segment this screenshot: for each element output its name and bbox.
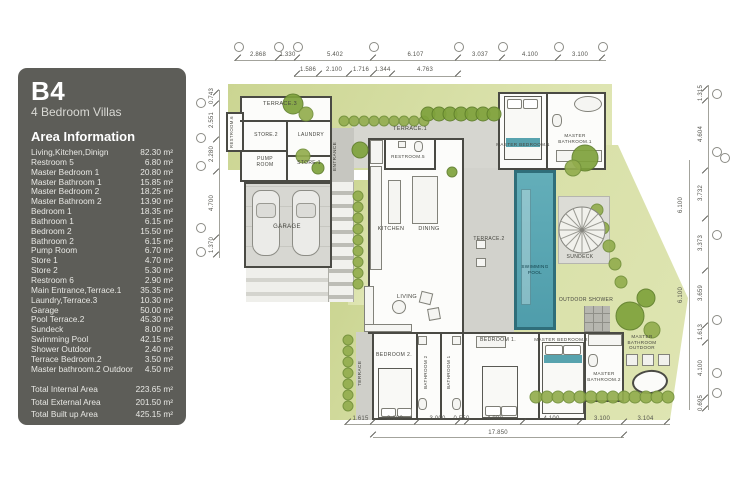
pool-ledge — [521, 189, 531, 305]
pillow — [485, 406, 501, 416]
toilet — [414, 141, 423, 152]
label-outdoor-shower: OUTDOOR SHOWER — [558, 297, 614, 303]
plan-subtitle: 4 Bedroom Villas — [31, 105, 173, 119]
toilet — [452, 398, 461, 410]
pillow — [523, 99, 538, 109]
dim-line — [373, 437, 624, 438]
toilet — [552, 114, 562, 127]
area-list: Living,Kitchen,Dinign 82.30 m² Restroom … — [31, 148, 173, 374]
dim-label: 6.107 — [373, 52, 458, 58]
label-restroom5: RESTROOM.5 — [384, 154, 432, 160]
label-bedroom1: BEDROOM 1. — [466, 337, 530, 344]
label-store2: STORE.2 — [246, 132, 286, 138]
total-value: 201.50 m² — [136, 396, 173, 408]
sink — [398, 141, 406, 148]
dim-label: 1.330 — [278, 52, 297, 58]
dim-tick — [621, 431, 627, 437]
dim-label: 3.732 — [698, 180, 704, 206]
toilet — [418, 398, 427, 410]
car-windshield — [256, 203, 276, 218]
grid-bubble — [598, 42, 608, 52]
dim-label: 2.100 — [319, 67, 349, 73]
dim-label: 3.000 — [417, 416, 458, 422]
vanity — [556, 150, 602, 162]
dim-label: 2.280 — [209, 141, 215, 167]
dim-label: 6.100 — [678, 282, 684, 308]
pillow — [501, 406, 517, 416]
grid-bubble — [196, 247, 206, 257]
grid-bubble — [369, 42, 379, 52]
grid-bubble — [712, 230, 722, 240]
dim-label: 1.370 — [209, 232, 215, 258]
dim-line — [708, 85, 709, 410]
dim-label: 3.100 — [580, 416, 624, 422]
car — [292, 190, 320, 256]
grid-bubble — [196, 98, 206, 108]
area-value: 4.50 m² — [145, 365, 173, 375]
area-information-heading: Area Information — [31, 129, 173, 144]
bathtub — [574, 96, 602, 112]
vanity — [588, 334, 622, 346]
dim-label: 4.000 — [467, 416, 523, 422]
terrace-2-area — [462, 168, 514, 332]
dim-label: 5.402 — [297, 52, 373, 58]
dim-label: 4.700 — [209, 190, 215, 216]
page: { "panel": { "title": "B4", "subtitle": … — [0, 0, 750, 500]
dim-label: 1.613 — [698, 319, 704, 345]
paver — [658, 354, 670, 366]
label-terrace1: TERRACE.1 — [390, 126, 430, 133]
dim-label: 3.659 — [698, 280, 704, 306]
dim-label: 3.104 — [624, 416, 667, 422]
sink — [418, 336, 427, 345]
grid-bubble — [274, 42, 284, 52]
sink — [452, 336, 461, 345]
dim-label: 2.551 — [209, 107, 215, 133]
plan-title: B4 — [31, 77, 173, 105]
label-entrance: ENTRANCE — [333, 136, 339, 176]
dim-line — [219, 90, 220, 258]
grid-bubble — [234, 42, 244, 52]
dim-label: 4.100 — [502, 52, 558, 58]
label-sundeck: SUNDECK — [558, 254, 602, 260]
dim-label: 0.743 — [209, 83, 215, 109]
pillow — [507, 99, 522, 109]
label-pump-room: PUMP ROOM — [248, 156, 282, 169]
partition — [286, 155, 332, 157]
grid-bubble — [554, 42, 564, 52]
dim-label: 17.850 — [458, 430, 538, 436]
label-bedroom2: BEDROOM 2. — [370, 352, 418, 359]
label-master-bedroom1: MASTER BEDROOM.1 — [496, 142, 550, 148]
dim-label: 1.615 — [348, 416, 373, 422]
driveway — [246, 268, 332, 302]
label-master-bedroom2: MASTER BEDROOM.2 — [532, 337, 590, 343]
total-row: Total Internal Area 223.65 m² — [31, 383, 173, 395]
grid-bubble — [712, 388, 722, 398]
dim-label: 3.100 — [558, 52, 602, 58]
pillow — [563, 345, 581, 355]
dim-label: 3.100 — [373, 416, 417, 422]
total-label: Total Built up Area — [31, 408, 98, 420]
dim-label: 1.315 — [698, 80, 704, 106]
pillow — [545, 345, 563, 355]
car-windshield — [296, 203, 316, 218]
dim-label: 3.373 — [698, 230, 704, 256]
label-bathroom2: BATHROOM 2 — [423, 346, 429, 398]
label-master-bathroom-outdoor: MASTER BATHROOM OUTDOOR — [620, 334, 664, 351]
total-label: Total Internal Area — [31, 383, 98, 395]
label-restroom6: RESTROOM.6 — [229, 114, 234, 150]
grid-bubble — [720, 153, 730, 163]
swimming-pool — [514, 170, 556, 330]
grid-bubble — [712, 89, 722, 99]
dim-label: 2.868 — [238, 52, 278, 58]
grid-bubble — [293, 42, 303, 52]
grid-bubble — [196, 133, 206, 143]
label-terrace2: TERRACE.2 — [466, 236, 512, 242]
paver — [642, 354, 654, 366]
total-row: Total External Area 201.50 m² — [31, 396, 173, 408]
label-kitchen: KITCHEN — [374, 226, 408, 233]
dining-table — [412, 176, 438, 224]
label-terrace-strip: TERRACE — [358, 350, 364, 396]
label-laundry: LAUNDRY — [291, 132, 331, 138]
total-row: Total Built up Area 425.15 m² — [31, 408, 173, 420]
label-master-bathroom2: MASTER BATHROOM.2 — [584, 371, 624, 382]
dim-label: 3.037 — [458, 52, 502, 58]
bed-runner — [544, 355, 582, 363]
sofa — [364, 324, 412, 332]
info-panel: B4 4 Bedroom Villas Area Information Liv… — [18, 68, 186, 425]
label-living: LIVING — [390, 294, 424, 301]
dim-label: 1.586 — [297, 67, 319, 73]
deck-chair — [476, 258, 486, 267]
grid-bubble — [196, 161, 206, 171]
dim-line — [689, 160, 690, 410]
dim-label: 4.604 — [698, 121, 704, 147]
total-value: 425.15 m² — [136, 408, 173, 420]
area-label: Master bathroom.2 Outdoor — [31, 365, 133, 375]
label-terrace3: TERRACE.3 — [257, 101, 303, 108]
grid-bubble — [712, 315, 722, 325]
label-master-bathroom1: MASTER BATHROOM.1 — [554, 133, 596, 144]
dim-label: 1.716 — [349, 67, 373, 73]
grid-bubble — [196, 223, 206, 233]
grid-bubble — [454, 42, 464, 52]
dim-label: 1.344 — [373, 67, 392, 73]
hall-closet — [370, 140, 383, 164]
partition — [240, 150, 288, 152]
grid-bubble — [498, 42, 508, 52]
kitchen-island — [388, 180, 401, 224]
label-garage: GARAGE — [264, 224, 310, 232]
dim-label: 4.100 — [698, 355, 704, 381]
total-value: 223.65 m² — [136, 383, 173, 395]
dim-line — [234, 60, 606, 61]
label-bathroom1: BATHROOM 1 — [446, 346, 452, 398]
dim-label: 0.695 — [698, 390, 704, 416]
coffee-table — [392, 300, 406, 314]
toilet — [588, 354, 598, 367]
totals-list: Total Internal Area 223.65 m² Total Exte… — [31, 383, 173, 420]
dim-label: 4.763 — [392, 67, 458, 73]
dim-label: 4.100 — [523, 416, 580, 422]
label-swimming-pool: SWIMMING POOL — [514, 264, 556, 275]
dim-line — [294, 76, 461, 77]
partition — [286, 122, 288, 182]
kitchen-counter — [370, 166, 382, 270]
grid-bubble — [712, 368, 722, 378]
area-row: Master bathroom.2 Outdoor 4.50 m² — [31, 365, 173, 375]
paver — [626, 354, 638, 366]
outdoor-shower-pad — [584, 306, 610, 332]
label-dining: DINING — [412, 226, 446, 233]
armchair — [427, 307, 441, 321]
car — [252, 190, 280, 256]
total-label: Total External Area — [31, 396, 101, 408]
label-store1: STORE.1 — [291, 160, 327, 166]
dim-label: 6.100 — [678, 192, 684, 218]
